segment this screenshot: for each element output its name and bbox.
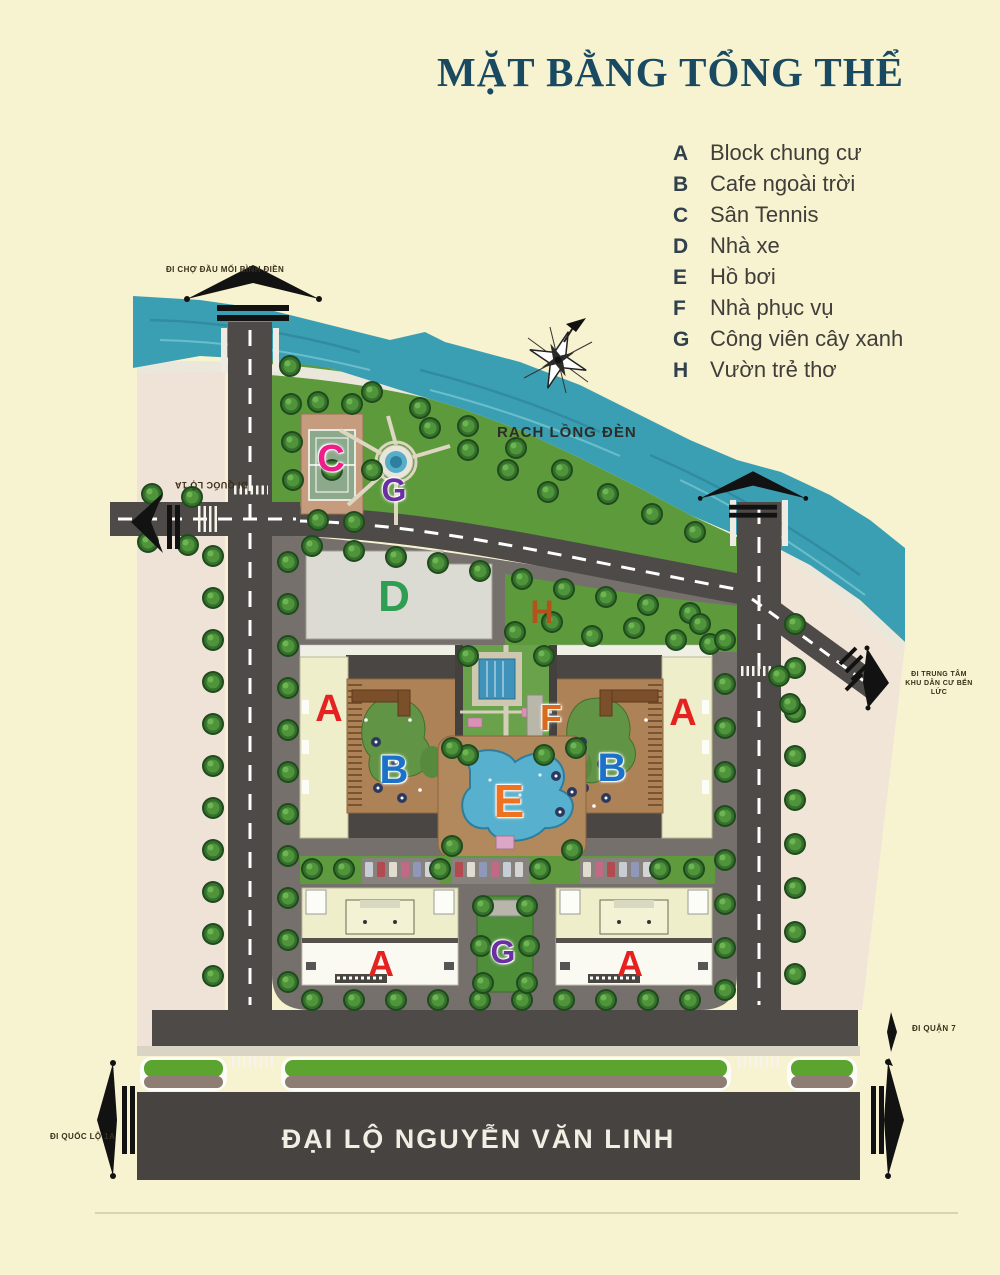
boulevard-nguyen-van-linh xyxy=(137,1046,860,1180)
marker-parking-d: D xyxy=(378,575,410,619)
marker-pool-e: E xyxy=(494,778,525,824)
marker-block-a-1: A xyxy=(315,690,342,728)
marker-service-f: F xyxy=(540,700,562,736)
marker-cafe-b-1: B xyxy=(380,750,409,790)
marker-block-a-3: A xyxy=(368,946,394,982)
direction-quoc-lo-1a-south-label: ĐI QUỐC LỘ 1A xyxy=(50,1132,115,1141)
legend: ABlock chung cư BCafe ngoài trời CSân Te… xyxy=(673,140,903,388)
boulevard-label: ĐẠI LỘ NGUYỄN VĂN LINH xyxy=(137,1124,820,1155)
legend-item-d: DNhà xe xyxy=(673,233,903,264)
legend-label: Nhà phục vụ xyxy=(710,295,834,321)
legend-item-c: CSân Tennis xyxy=(673,202,903,233)
marker-children-garden-h: H xyxy=(530,596,553,628)
marker-tennis-c: C xyxy=(317,440,344,478)
parked-cars xyxy=(365,862,651,877)
legend-item-b: BCafe ngoài trời xyxy=(673,171,903,202)
legend-item-a: ABlock chung cư xyxy=(673,140,903,171)
legend-label: Cafe ngoài trời xyxy=(710,171,855,197)
legend-label: Sân Tennis xyxy=(710,202,818,228)
legend-key: D xyxy=(673,235,710,259)
marker-block-a-2: A xyxy=(669,694,696,732)
legend-key: G xyxy=(673,328,710,352)
legend-item-g: GCông viên cây xanh xyxy=(673,326,903,357)
legend-item-h: HVườn trẻ thơ xyxy=(673,357,903,388)
legend-label: Công viên cây xanh xyxy=(710,326,903,352)
legend-item-f: FNhà phục vụ xyxy=(673,295,903,326)
legend-key: F xyxy=(673,297,710,321)
marker-park-g-lower: G xyxy=(491,936,516,968)
direction-ben-luc-line2: KHU DÂN CƯ BẾN LỨC xyxy=(905,680,972,696)
legend-key: C xyxy=(673,204,710,228)
legend-key: B xyxy=(673,173,710,197)
legend-label: Hồ bơi xyxy=(710,264,776,290)
southeast-arrow-icon xyxy=(871,1059,904,1179)
southwest-arrow-icon xyxy=(97,1060,135,1179)
legend-label: Block chung cư xyxy=(710,140,862,166)
district7-arrow-icon xyxy=(886,1012,897,1066)
legend-item-e: EHồ bơi xyxy=(673,264,903,295)
site-plan-page: MẶT BẰNG TỔNG THỂ ABlock chung cư BCafe … xyxy=(0,0,1000,1275)
legend-key: H xyxy=(673,359,710,383)
legend-key: E xyxy=(673,266,710,290)
direction-quoc-lo-1a-west-label: ĐI QUỐC LỘ 1A xyxy=(152,480,270,490)
waterway-label: RẠCH LỒNG ĐÈN xyxy=(497,424,637,441)
legend-label: Nhà xe xyxy=(710,233,780,259)
page-title: MẶT BẰNG TỔNG THỂ xyxy=(437,48,903,96)
direction-ben-luc-label: ĐI TRUNG TÂM KHU DÂN CƯ BẾN LỨC xyxy=(896,670,982,697)
legend-label: Vườn trẻ thơ xyxy=(710,357,837,383)
direction-binh-dien-label: ĐI CHỢ ĐẦU MỐI BÌNH ĐIỀN xyxy=(166,265,284,274)
marker-cafe-b-2: B xyxy=(598,748,627,788)
marker-park-g: G xyxy=(382,474,407,506)
legend-key: A xyxy=(673,142,710,166)
marker-block-a-4: A xyxy=(617,946,643,982)
direction-ben-luc-line1: ĐI TRUNG TÂM xyxy=(911,671,967,678)
direction-district7-label: ĐI QUẬN 7 xyxy=(912,1024,956,1033)
